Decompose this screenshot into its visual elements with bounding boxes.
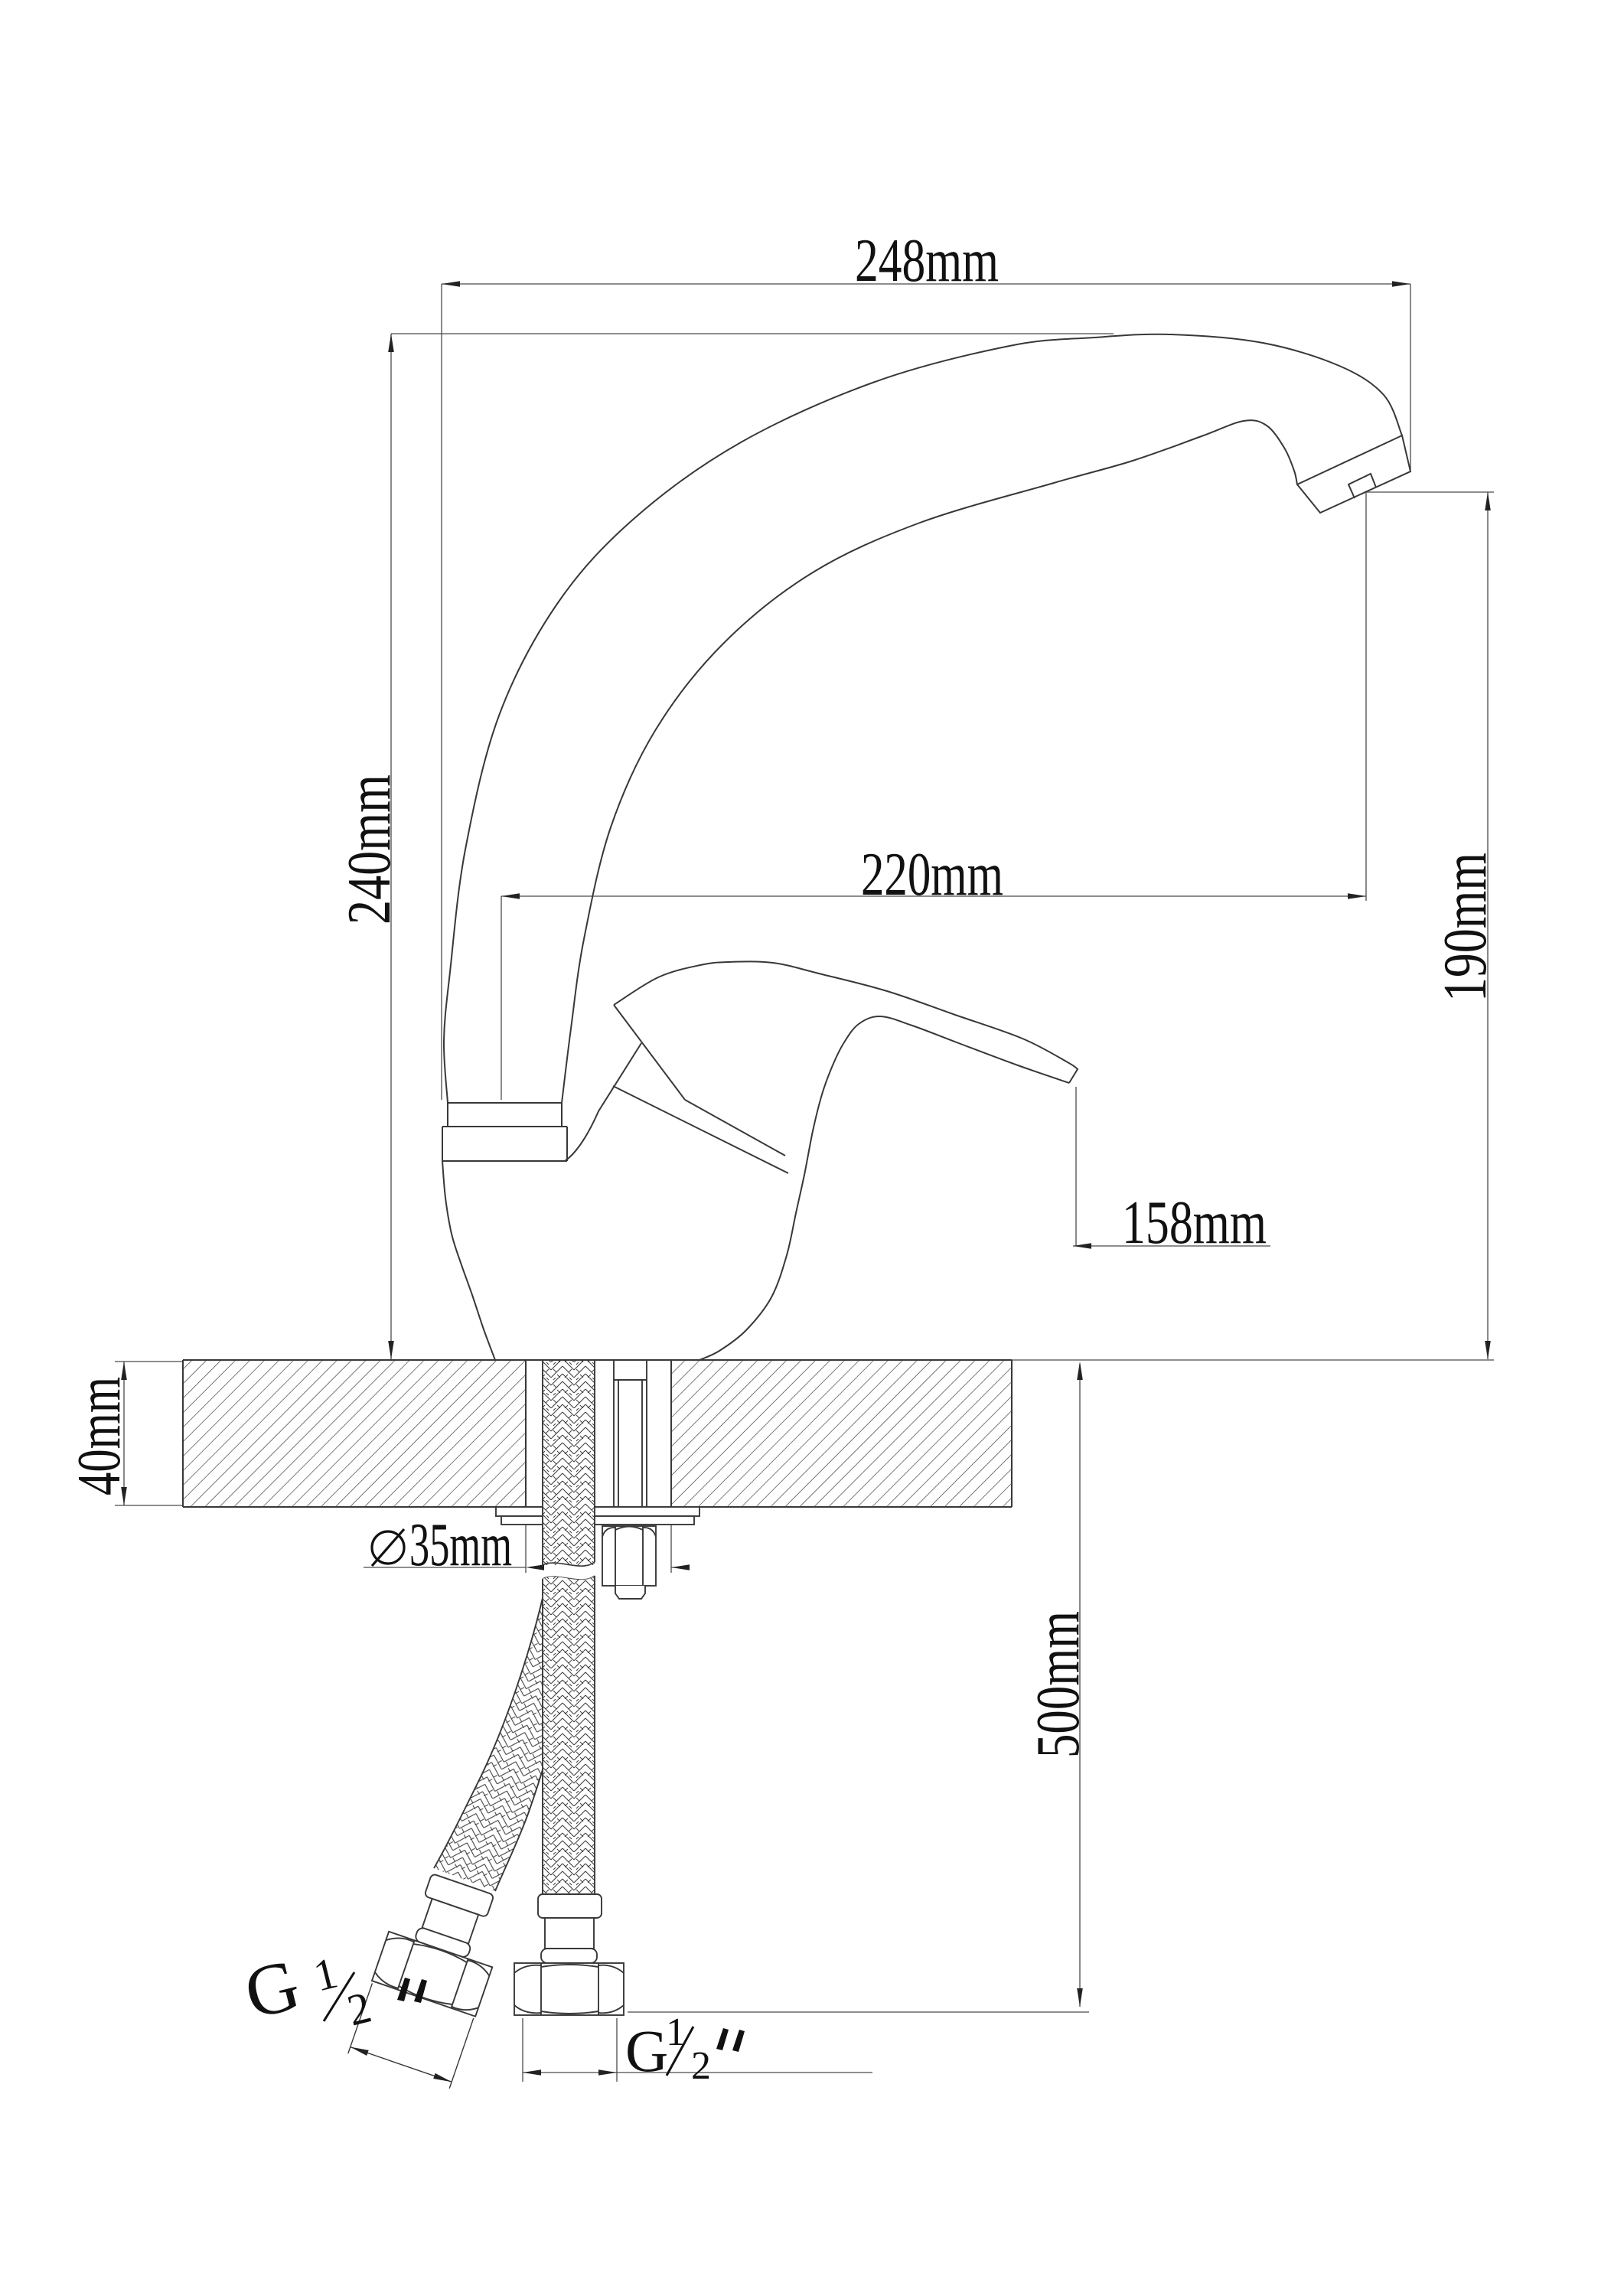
svg-text:500mm: 500mm <box>1025 1611 1092 1758</box>
svg-text:248mm: 248mm <box>855 227 999 295</box>
svg-text:190mm: 190mm <box>1432 853 1499 1002</box>
svg-text:2: 2 <box>691 2044 711 2088</box>
svg-text:158mm: 158mm <box>1122 1189 1267 1257</box>
svg-text:40mm: 40mm <box>66 1377 133 1495</box>
svg-text:220mm: 220mm <box>861 841 1003 908</box>
svg-text:G: G <box>625 2017 668 2084</box>
svg-text:35mm: 35mm <box>409 1512 512 1579</box>
svg-text:240mm: 240mm <box>336 775 403 925</box>
